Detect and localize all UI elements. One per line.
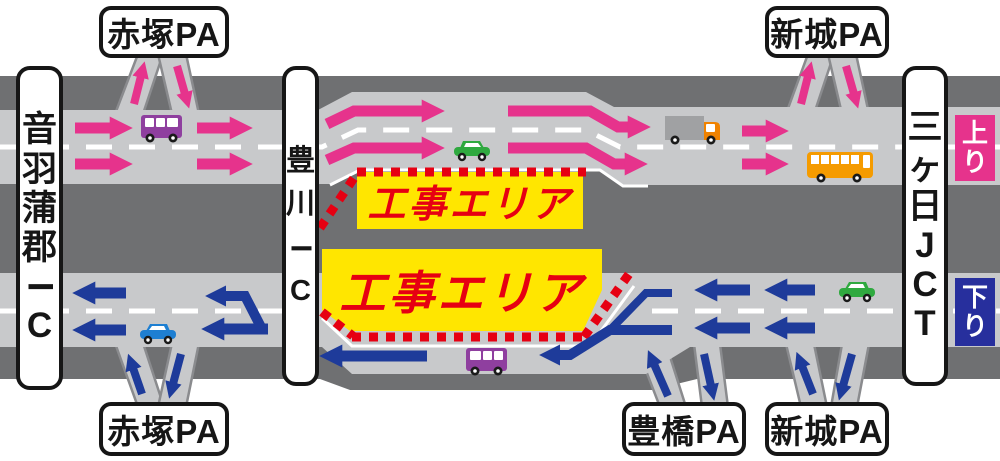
construction-label-up: 工事エリア — [357, 172, 583, 229]
ic-label-toyokawa: 豊川IC — [282, 66, 319, 386]
jct-label-mikkabi: 三ヶ日JCT — [902, 66, 948, 386]
pa-label-shinshiro-bottom: 新城PA — [765, 402, 889, 456]
pa-label-akatsuka-bottom: 赤塚PA — [99, 402, 229, 456]
pa-label-toyohashi: 豊橋PA — [622, 402, 746, 456]
badge-down-line: 下り — [955, 278, 995, 346]
diagram-canvas — [0, 0, 1000, 461]
highway-construction-diagram: 工事エリア 工事エリア 音羽蒲郡IC 豊川IC 三ヶ日JCT 赤塚PA 新城PA… — [0, 0, 1000, 461]
pa-label-akatsuka-top: 赤塚PA — [99, 6, 229, 58]
pa-label-shinshiro-top: 新城PA — [765, 6, 889, 58]
ic-label-otowa-gamagori: 音羽蒲郡IC — [16, 66, 63, 390]
badge-up-line: 上り — [955, 115, 995, 181]
construction-label-down: 工事エリア — [322, 251, 602, 329]
vehicle-bus — [807, 152, 873, 183]
